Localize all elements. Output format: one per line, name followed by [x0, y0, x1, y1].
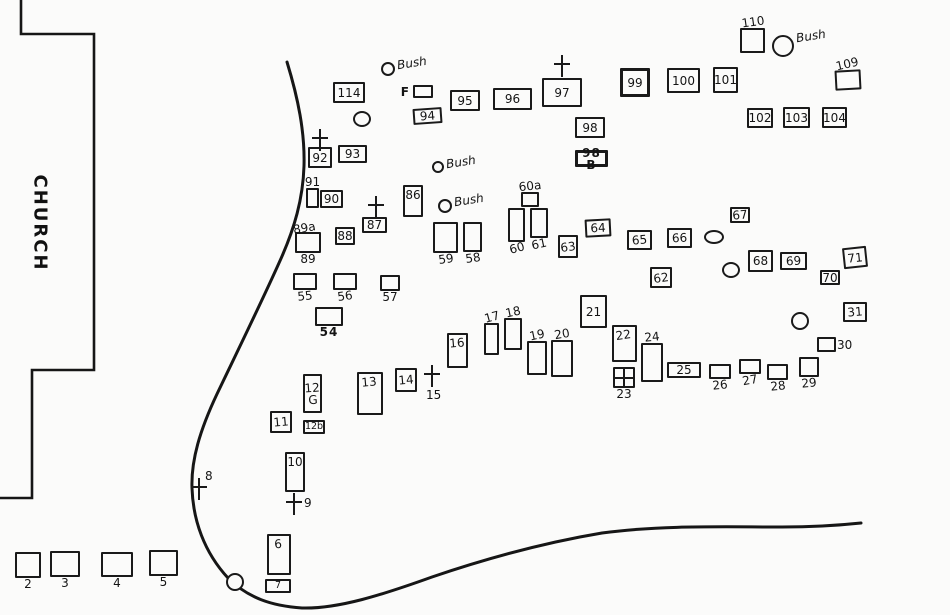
- plot-11: 11: [270, 411, 292, 433]
- plot-27: 27: [739, 359, 761, 374]
- plot-label: 103: [785, 109, 808, 126]
- plot-102: 102: [747, 108, 773, 128]
- plot-67: 67: [730, 207, 750, 223]
- circle-marker: [704, 230, 724, 244]
- bush-circle: [772, 35, 794, 57]
- plot-label: 30: [837, 339, 852, 351]
- plot-7: 7: [265, 579, 291, 593]
- plot-label: 101: [715, 69, 736, 91]
- plot-66: 66: [667, 228, 692, 248]
- plot-5: 5: [149, 550, 178, 576]
- plot-label: 89a: [292, 220, 316, 236]
- cross-marker-8: 8: [191, 478, 207, 500]
- plot-29: 29: [799, 357, 819, 377]
- plot-109: 109: [834, 69, 861, 90]
- bush-label: Bush: [445, 153, 477, 171]
- plot-label: 20: [553, 327, 570, 341]
- plot-30: 30: [817, 337, 836, 352]
- plot-97: 97: [542, 78, 582, 107]
- plot-89: 8989a: [295, 232, 321, 253]
- plot-62: 62: [650, 267, 672, 288]
- plot-17: 17: [484, 323, 499, 355]
- plot-26: 26: [709, 364, 731, 379]
- plot-57: 57: [380, 275, 400, 291]
- plot-label: 16: [448, 334, 468, 366]
- plot-3: 3: [50, 551, 80, 577]
- plot-98-b: 98 B: [575, 150, 608, 167]
- plot-label: 55: [297, 289, 313, 303]
- plot-59: 59: [433, 222, 458, 253]
- cross-label: 15: [426, 389, 441, 401]
- plot-label: F: [401, 86, 410, 98]
- plot-19: 19: [527, 341, 547, 375]
- plot-label: 57: [382, 291, 397, 303]
- plot-20: 20: [551, 340, 573, 377]
- plot-16: 16: [447, 333, 468, 368]
- plot-label: 99: [623, 71, 647, 94]
- plot-87: 87: [362, 217, 387, 233]
- circle-marker: [226, 573, 244, 591]
- plot-54: 54: [315, 307, 343, 326]
- plot-56: 56: [333, 273, 357, 290]
- plot-63: 63: [558, 235, 578, 258]
- plot-label: 29: [801, 376, 817, 390]
- plot-100: 100: [667, 68, 700, 93]
- plot-86: 86: [403, 185, 423, 217]
- plot-label: 5: [160, 576, 168, 588]
- cross-marker: [312, 129, 328, 151]
- bush-label: Bush: [396, 54, 428, 72]
- plot-label: 87: [364, 219, 385, 231]
- bush-circle: [438, 199, 452, 213]
- plot-label: 14: [396, 369, 416, 390]
- bush-circle: [432, 161, 444, 173]
- plot-24: 24: [641, 343, 663, 382]
- bush-label: Bush: [795, 27, 827, 45]
- plot-label: 22: [612, 326, 637, 362]
- plot-label: 6: [267, 535, 290, 574]
- cemetery-boundary-path: [192, 62, 861, 608]
- plot-101: 101: [713, 67, 738, 93]
- plot-114: 114: [333, 82, 365, 103]
- plot-label: 64: [587, 220, 610, 235]
- plot-6: 6: [267, 534, 291, 575]
- plot-label: 7: [267, 581, 289, 591]
- plot-64: 64: [585, 218, 612, 237]
- plot-18: 18: [504, 318, 522, 350]
- plot-22: 22: [612, 325, 637, 362]
- plot-label: 100: [669, 70, 698, 91]
- plot-31: 31: [843, 302, 867, 322]
- plot-label: 28: [769, 379, 785, 393]
- plot-label: 98: [577, 119, 603, 136]
- plot-2: 2: [15, 552, 41, 578]
- plot-label: 3: [61, 577, 69, 589]
- plot-label: 95: [452, 92, 478, 109]
- plot-69: 69: [780, 252, 807, 270]
- plot-label: 98 B: [578, 153, 605, 164]
- plot-21: 21: [580, 295, 607, 328]
- plot-91: 91: [306, 188, 319, 208]
- plot-65: 65: [627, 230, 652, 250]
- plot-label: 68: [750, 252, 771, 270]
- plot-label: 109: [835, 56, 860, 73]
- plot-label: 67: [732, 208, 749, 221]
- plot-label: 62: [651, 268, 671, 287]
- circle-marker: [722, 262, 740, 278]
- plot-label: 60: [508, 240, 526, 256]
- cross-marker-15: 15: [424, 365, 440, 387]
- plot-label: 56: [337, 289, 354, 303]
- plot-10: 10: [285, 452, 305, 492]
- plot-label: 65: [628, 231, 650, 249]
- plot-label: 69: [782, 253, 806, 268]
- plot-label: 61: [530, 237, 547, 252]
- plot-90: 90: [320, 190, 343, 208]
- plot-label: 25: [669, 364, 699, 376]
- plot-label: 2: [24, 578, 32, 590]
- plot-label: 86: [405, 187, 421, 215]
- plot-28: 28: [767, 364, 788, 380]
- cemetery-map: CHURCH 114F959697949898 B991001011101091…: [0, 0, 950, 615]
- plot-98: 98: [575, 117, 605, 138]
- plot-25: 25: [667, 362, 701, 378]
- plot-label: 71: [844, 248, 866, 267]
- plot-label: 59: [437, 252, 454, 266]
- plot-93: 93: [338, 145, 367, 163]
- circle-marker: [353, 111, 371, 127]
- plot-label: 58: [464, 251, 481, 265]
- plot-label: 114: [335, 84, 363, 101]
- plot-f: F: [413, 85, 433, 98]
- plot-12-g: 12 G: [303, 374, 322, 413]
- bush-label: Bush: [453, 191, 485, 209]
- plot-4: 4: [101, 552, 133, 577]
- cross-label: 9: [304, 497, 312, 509]
- plot-label: 90: [322, 192, 341, 206]
- plot-label: 93: [340, 147, 365, 161]
- plot-13: 13: [357, 372, 383, 415]
- cross-marker: [368, 196, 384, 218]
- plot-58: 58: [463, 222, 482, 252]
- plot-61: 61: [530, 208, 548, 238]
- plot-label: 66: [669, 229, 691, 246]
- plot-label: 13: [357, 373, 382, 414]
- plot-104: 104: [822, 107, 847, 128]
- cross-marker-9: 9: [286, 493, 302, 515]
- plot-95: 95: [450, 90, 480, 111]
- plot-label: 24: [644, 330, 660, 344]
- plot-label: 23: [616, 388, 631, 400]
- plot-label: 60a: [518, 179, 542, 193]
- plot-label: 94: [415, 109, 441, 123]
- plot-60a: 60a: [521, 192, 539, 207]
- plot-99: 99: [620, 68, 650, 97]
- bush-circle: [381, 62, 395, 76]
- plot-label: 54: [320, 326, 339, 338]
- plot-103: 103: [783, 107, 810, 128]
- plot-label: 27: [741, 373, 758, 387]
- plot-23: 23: [613, 367, 635, 388]
- plot-71: 71: [842, 246, 868, 269]
- plot-label: 4: [113, 577, 121, 589]
- plot-label: 97: [544, 80, 580, 105]
- cross-label: 8: [205, 470, 213, 482]
- plot-label: 18: [504, 305, 521, 320]
- plot-label: 31: [844, 303, 865, 321]
- plot-label: 104: [824, 109, 845, 126]
- plot-label: 10: [287, 454, 303, 490]
- plot-12b: 12b: [303, 420, 325, 434]
- plot-55: 55: [293, 273, 317, 290]
- church-label: CHURCH: [30, 174, 51, 271]
- cross-marker: [554, 55, 570, 77]
- plot-label: 88: [337, 229, 353, 243]
- plot-label: 12 G: [304, 376, 321, 412]
- plot-70: 70: [820, 270, 840, 285]
- plot-label: 19: [528, 328, 545, 343]
- plot-label: 70: [822, 272, 838, 283]
- plot-label: 11: [271, 412, 291, 432]
- plot-label: 102: [749, 110, 771, 126]
- plot-14: 14: [395, 368, 417, 392]
- plot-label: 110: [740, 14, 764, 29]
- plot-68: 68: [748, 250, 773, 272]
- plot-label: 17: [483, 309, 501, 325]
- plot-label: 96: [495, 90, 530, 108]
- plot-88: 88: [335, 227, 355, 245]
- plot-label: 89: [300, 253, 315, 265]
- plot-96: 96: [493, 88, 532, 110]
- plot-label: 63: [559, 236, 577, 257]
- plot-label: 92: [310, 149, 330, 166]
- plot-label: 26: [712, 378, 728, 392]
- plot-110: 110: [740, 28, 765, 53]
- plot-label: 12b: [305, 422, 323, 432]
- plot-94: 94: [412, 107, 442, 125]
- circle-marker: [791, 312, 809, 330]
- plot-label: 91: [305, 176, 320, 188]
- plot-60: 60: [508, 208, 525, 242]
- plot-label: 21: [582, 297, 605, 326]
